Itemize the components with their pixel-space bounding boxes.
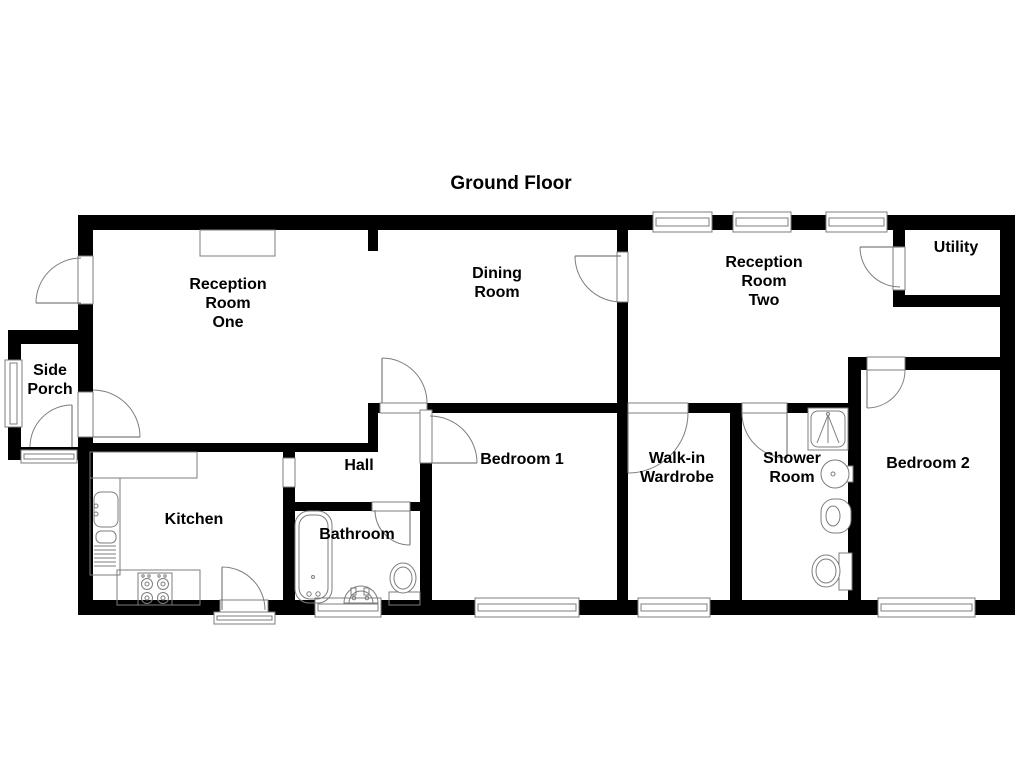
toilet2-tank bbox=[839, 553, 852, 590]
reception2-window-3 bbox=[826, 212, 887, 232]
room-label-reception-room-one-line-2: Room bbox=[205, 295, 250, 312]
wall-utility-south bbox=[893, 295, 1007, 307]
porch-threshold-frame bbox=[21, 450, 77, 463]
bedroom1-door-opening bbox=[420, 410, 432, 463]
porch-window-frame bbox=[5, 360, 22, 427]
room-label-dining-room-line-2: Room bbox=[474, 284, 519, 301]
room-label-walk-in-wardrobe-line-1: Walk-in bbox=[649, 450, 705, 467]
room-label-shower-room-line-2: Room bbox=[769, 469, 814, 486]
wall-reception-dining-stub bbox=[368, 230, 378, 251]
room-label-hall: Hall bbox=[344, 457, 373, 474]
room-label-shower-room-line-1: Shower bbox=[763, 450, 821, 467]
bedroom2-window bbox=[878, 598, 975, 617]
room-label-bedroom-1-line-1: Bedroom 1 bbox=[480, 451, 564, 468]
room-label-side-porch-line-1: Side bbox=[33, 362, 67, 379]
kitchen-threshold bbox=[214, 612, 275, 624]
dining-reception2-opening bbox=[617, 252, 628, 302]
walkin-window-frame bbox=[638, 598, 710, 617]
bedroom1-window bbox=[475, 598, 579, 617]
floor-plan-page: Ground FloorReceptionRoomOneDiningRoomRe… bbox=[0, 0, 1024, 768]
kitchen-hall-opening bbox=[283, 458, 295, 487]
reception2-window-2 bbox=[733, 212, 791, 232]
room-label-bathroom: Bathroom bbox=[319, 526, 395, 543]
room-label-bedroom-2-line-1: Bedroom 2 bbox=[886, 455, 970, 472]
reception2-window-3-frame bbox=[826, 212, 887, 232]
room-label-bedroom-2: Bedroom 2 bbox=[886, 455, 970, 472]
background bbox=[0, 0, 1024, 768]
walkin-door-opening bbox=[628, 403, 688, 413]
walkin-window bbox=[638, 598, 710, 617]
wall-walkin-shower-divider bbox=[730, 413, 742, 615]
wall-bedroom1-walkin-divider bbox=[617, 413, 628, 615]
room-label-kitchen: Kitchen bbox=[165, 511, 224, 528]
shower-door-opening bbox=[742, 403, 787, 413]
bedroom2-window-frame bbox=[878, 598, 975, 617]
front-door-opening bbox=[78, 256, 93, 304]
room-label-utility: Utility bbox=[934, 239, 979, 256]
reception2-window-2-frame bbox=[733, 212, 791, 232]
bathroom-door-opening bbox=[372, 502, 410, 511]
wall-reception-one-south bbox=[85, 443, 377, 452]
utility-door-opening bbox=[893, 247, 905, 290]
room-label-walk-in-wardrobe-line-2: Wardrobe bbox=[640, 469, 714, 486]
porch-threshold bbox=[21, 450, 77, 463]
floor-plan-title: Ground Floor bbox=[450, 173, 572, 194]
room-label-side-porch-line-2: Porch bbox=[27, 381, 72, 398]
room-label-reception-room-two-line-1: Reception bbox=[725, 254, 802, 271]
bedroom1-window-frame bbox=[475, 598, 579, 617]
wall-exterior-east bbox=[1000, 215, 1015, 615]
room-label-reception-room-two-line-2: Room bbox=[741, 273, 786, 290]
porch-house-opening bbox=[78, 392, 93, 437]
room-label-bedroom-1: Bedroom 1 bbox=[480, 451, 564, 468]
room-label-reception-room-one-line-1: Reception bbox=[189, 276, 266, 293]
room-label-bathroom-line-1: Bathroom bbox=[319, 526, 395, 543]
room-label-dining-room-line-1: Dining bbox=[472, 265, 522, 282]
room-label-hall-line-1: Hall bbox=[344, 457, 373, 474]
bedroom2-door-opening bbox=[867, 357, 905, 370]
floor-plan: Ground FloorReceptionRoomOneDiningRoomRe… bbox=[0, 0, 1024, 768]
reception2-window-1 bbox=[653, 212, 712, 232]
kitchen-threshold-frame bbox=[214, 612, 275, 624]
reception2-window-1-frame bbox=[653, 212, 712, 232]
room-label-kitchen-line-1: Kitchen bbox=[165, 511, 224, 528]
porch-window bbox=[5, 360, 22, 427]
room-label-reception-room-one-line-3: One bbox=[212, 314, 243, 331]
room-label-utility-line-1: Utility bbox=[934, 239, 979, 256]
room-label-reception-room-two-line-3: Two bbox=[749, 292, 780, 309]
